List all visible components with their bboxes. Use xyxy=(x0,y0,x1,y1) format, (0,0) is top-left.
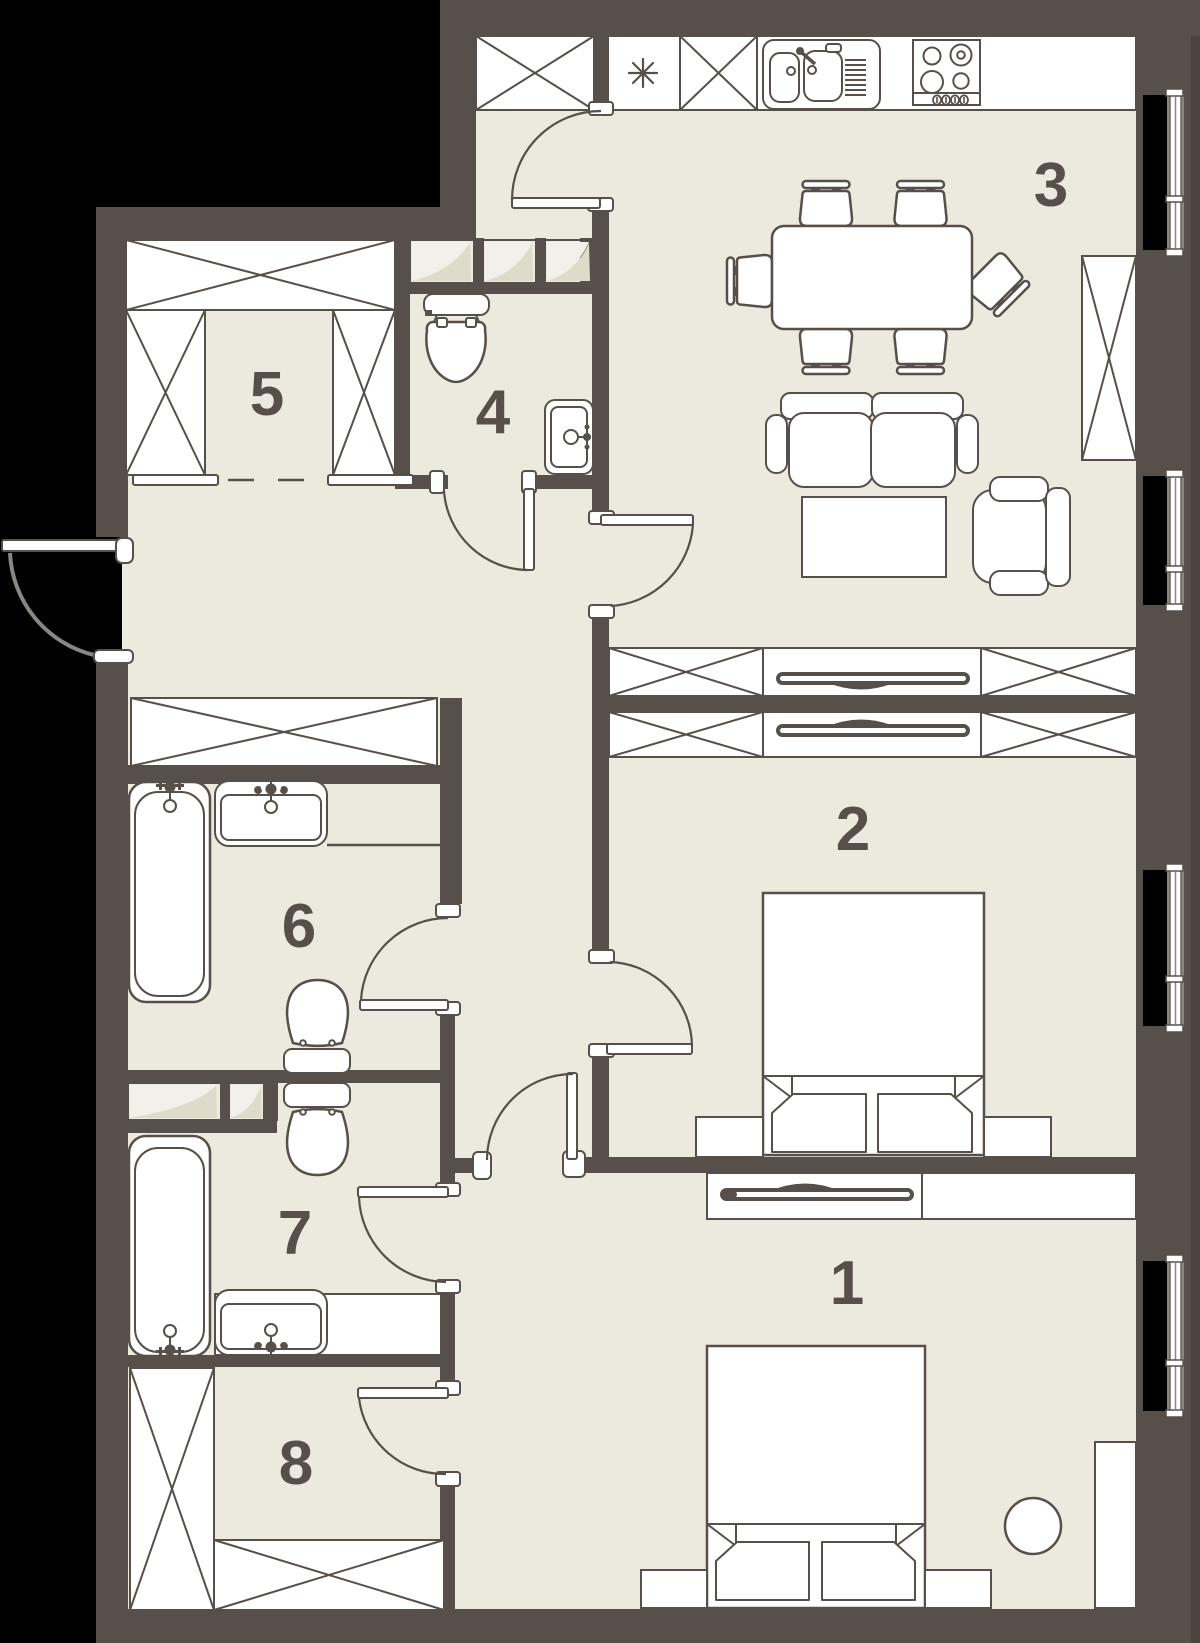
svg-text:6: 6 xyxy=(282,892,316,961)
svg-text:7: 7 xyxy=(278,1199,312,1268)
svg-text:1: 1 xyxy=(830,1249,864,1318)
svg-text:4: 4 xyxy=(476,378,511,447)
svg-text:2: 2 xyxy=(836,795,870,864)
svg-text:3: 3 xyxy=(1034,151,1068,220)
svg-text:8: 8 xyxy=(279,1429,313,1498)
svg-text:5: 5 xyxy=(250,360,284,429)
